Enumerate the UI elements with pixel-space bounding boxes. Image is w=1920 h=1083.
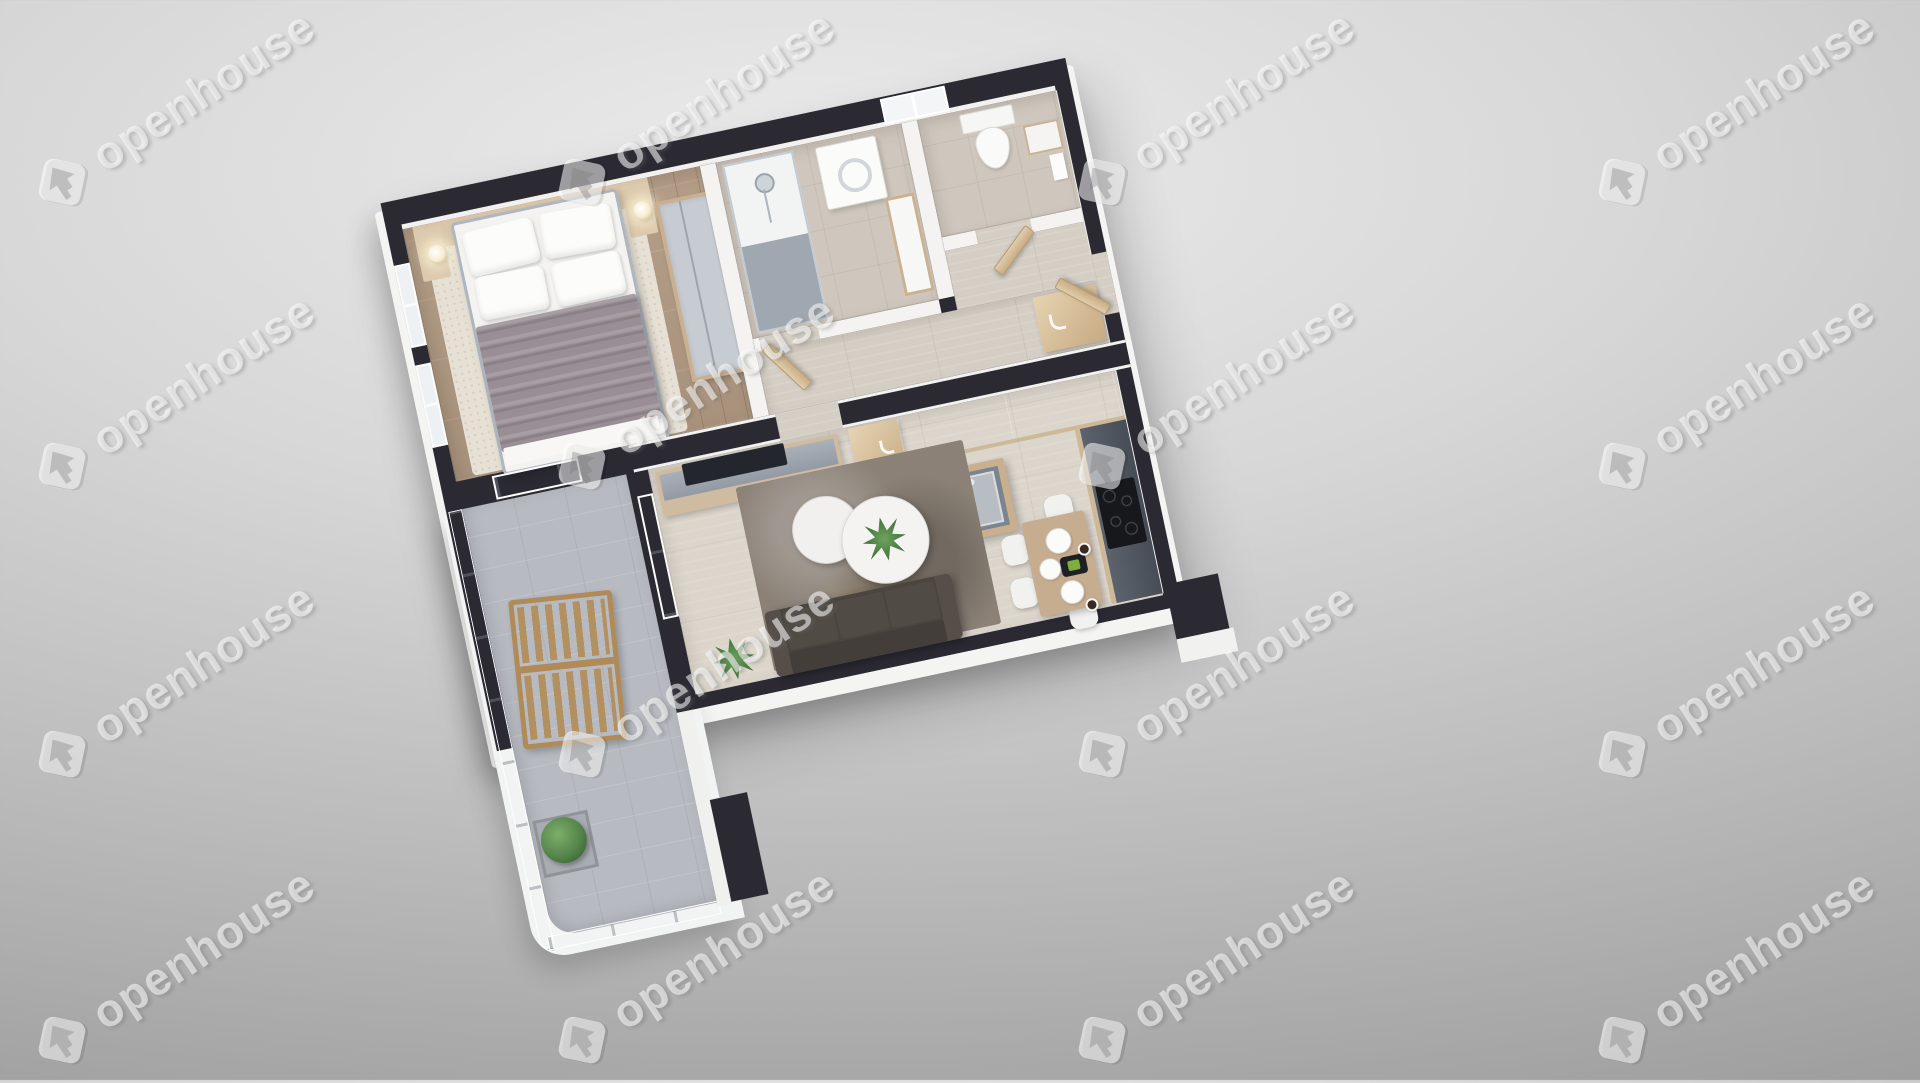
- watermark-text: openhouse: [1122, 857, 1365, 1041]
- openhouse-logo-icon: [539, 997, 625, 1083]
- openhouse-watermark: openhouse: [19, 279, 326, 509]
- watermark-text: openhouse: [1122, 0, 1365, 182]
- window-mullion: [911, 94, 919, 116]
- openhouse-watermark: openhouse: [19, 0, 326, 225]
- openhouse-logo-icon: [1579, 997, 1665, 1083]
- openhouse-logo-icon: [19, 139, 105, 225]
- openhouse-watermark: openhouse: [1059, 853, 1366, 1083]
- window-mullion: [404, 302, 416, 307]
- openhouse-watermark: openhouse: [1579, 279, 1886, 509]
- wardrobe-door-divider: [679, 201, 716, 366]
- openhouse-watermark: openhouse: [19, 853, 326, 1083]
- watermark-text: openhouse: [82, 283, 325, 467]
- deck-chair-slats: [517, 598, 610, 663]
- watermark-text: openhouse: [1642, 571, 1885, 755]
- openhouse-watermark: openhouse: [1579, 567, 1886, 797]
- openhouse-logo-icon: [19, 423, 105, 509]
- openhouse-logo-icon: [1579, 423, 1665, 509]
- window-mullion: [425, 402, 437, 407]
- watermark-text: openhouse: [1122, 283, 1365, 467]
- watermark-text: openhouse: [1642, 283, 1885, 467]
- deck-chair-slats: [524, 667, 618, 740]
- openhouse-watermark: openhouse: [1579, 853, 1886, 1083]
- openhouse-logo-icon: [1059, 997, 1145, 1083]
- watermark-text: openhouse: [82, 571, 325, 755]
- openhouse-watermark: openhouse: [1579, 0, 1886, 225]
- washing-machine: [814, 135, 888, 210]
- tray-food: [1067, 559, 1081, 571]
- watermark-text: openhouse: [82, 0, 325, 182]
- openhouse-logo-icon: [19, 711, 105, 797]
- openhouse-logo-icon: [19, 997, 105, 1083]
- shower-tray: [742, 233, 826, 331]
- cabinet-handle: [1048, 312, 1066, 332]
- watermark-text: openhouse: [1642, 0, 1885, 182]
- watermark-text: openhouse: [1642, 857, 1885, 1041]
- shower-hose: [763, 189, 772, 223]
- openhouse-watermark: openhouse: [19, 567, 326, 797]
- wooden-deck-chair: [508, 590, 627, 750]
- floor-plan-render: [371, 56, 1240, 978]
- watermark-text: openhouse: [82, 857, 325, 1041]
- washing-machine-door-ring: [835, 155, 875, 195]
- openhouse-logo-icon: [1579, 711, 1665, 797]
- openhouse-watermark: openhouse: [1059, 0, 1366, 225]
- openhouse-logo-icon: [1579, 139, 1665, 225]
- cabinet-handle: [879, 438, 895, 455]
